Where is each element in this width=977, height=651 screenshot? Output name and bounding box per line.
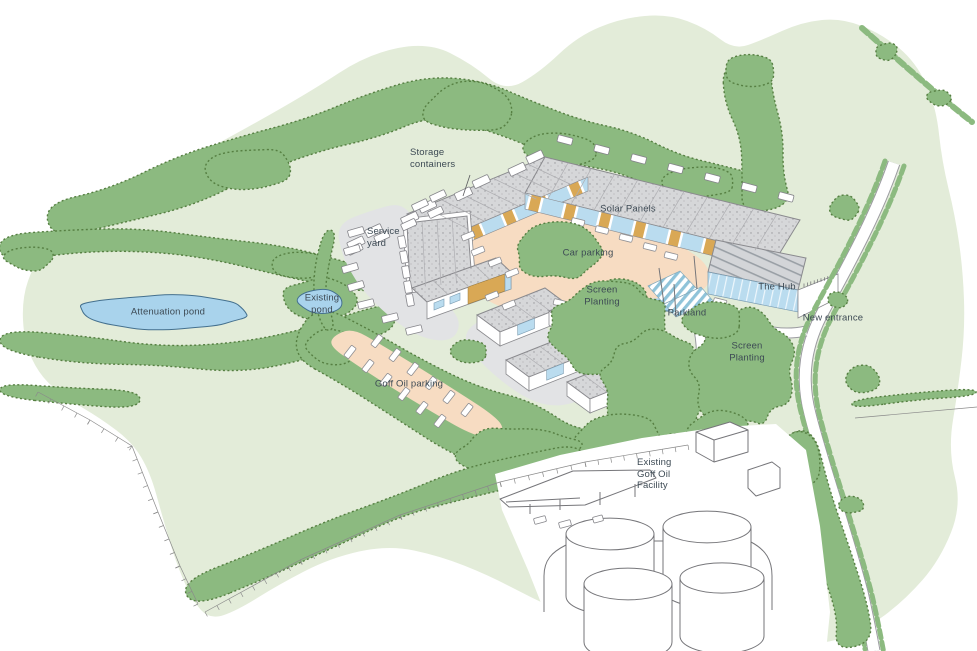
site-masterplan-illustration: Storage containers Service yard Solar Pa… [0, 0, 977, 651]
site-plan-drawing [0, 0, 977, 651]
